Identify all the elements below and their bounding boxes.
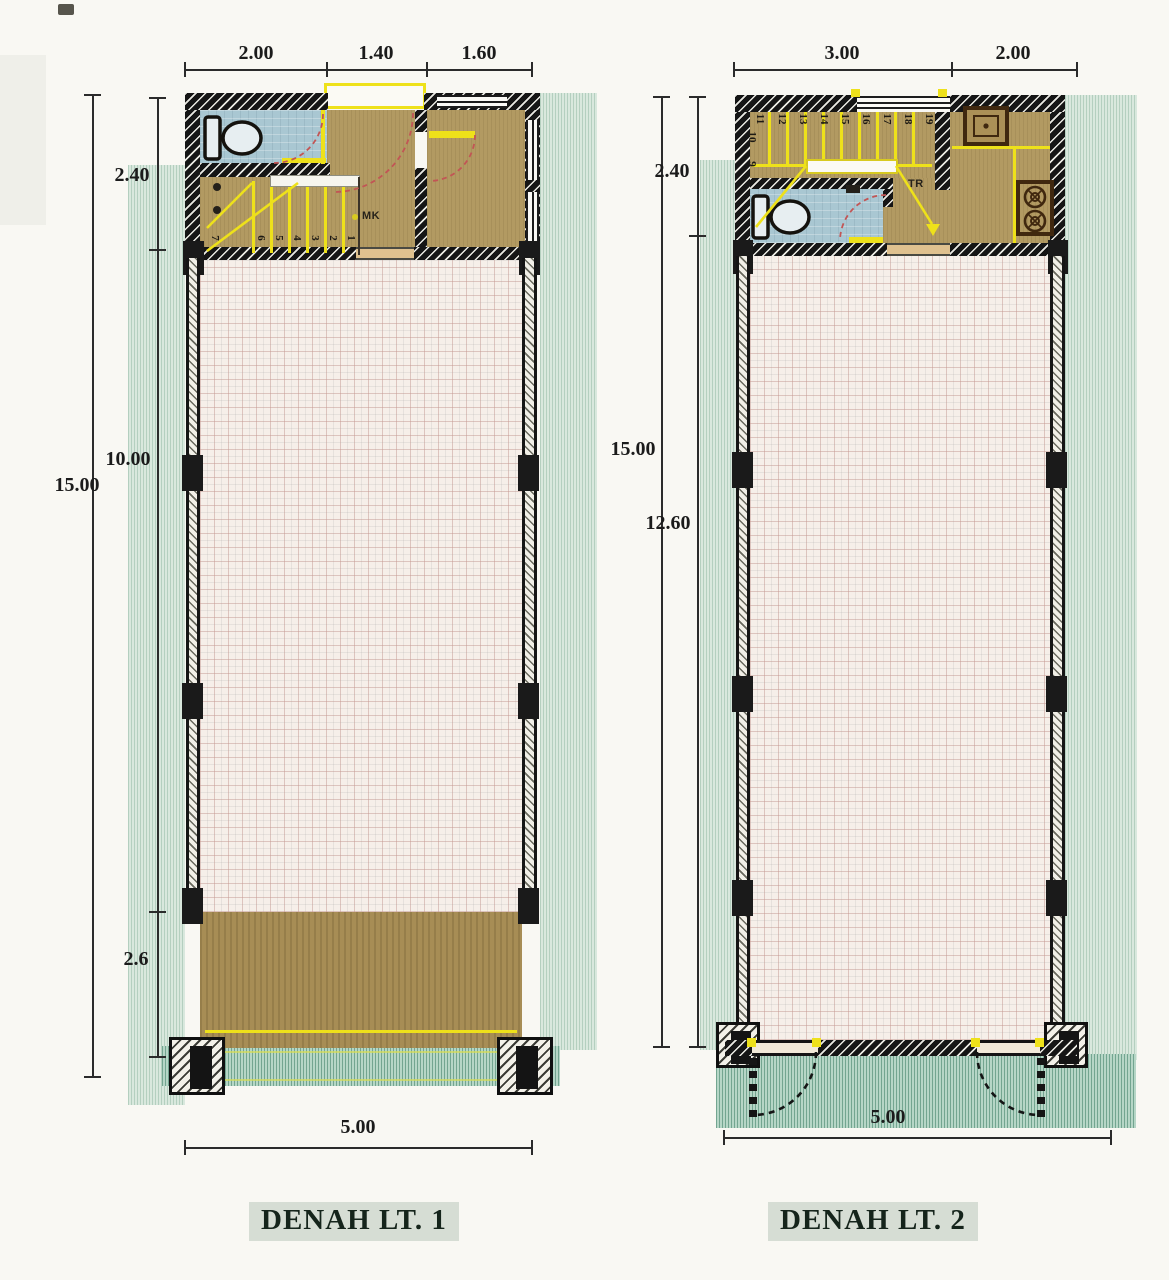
dim-tick [1110, 1130, 1112, 1145]
stair-number: 4 [289, 231, 303, 245]
floorplan-sheet: 2.00 1.40 1.60 15.00 2.40 10.00 2.6 [0, 0, 1169, 1280]
room-door-leaf [429, 131, 475, 138]
dim-tick [84, 1076, 101, 1078]
column [518, 888, 539, 924]
column [518, 455, 539, 491]
dimension-label: 15.00 [601, 438, 665, 461]
column-footing [169, 1037, 225, 1095]
column [732, 676, 753, 712]
stair-number: 2 [325, 231, 339, 245]
dim-line-bottom [724, 1137, 1112, 1139]
door-hinge-mark [1035, 1038, 1044, 1047]
dimension-label: 15.00 [45, 474, 109, 497]
stair-number: 11 [752, 112, 766, 126]
dimension-label: 10.00 [96, 448, 160, 471]
stair-number: 14 [816, 112, 830, 126]
carport-line [205, 1030, 517, 1033]
stair-direction-note: MK [362, 210, 380, 222]
stair-number: 15 [837, 112, 851, 126]
column [1046, 452, 1067, 488]
stair-number: 6 [253, 231, 267, 245]
terrace-floor [200, 912, 522, 1048]
dim-tick [653, 1046, 670, 1048]
column [518, 683, 539, 719]
dimension-label: 5.00 [326, 1116, 390, 1139]
dim-tick [689, 1046, 706, 1048]
kitchen-counter-line [1013, 146, 1016, 243]
stair-number: 12 [774, 112, 788, 126]
shower-head-mark [846, 185, 860, 193]
site-line [172, 1079, 545, 1081]
stair-handrail [270, 175, 360, 187]
column [1046, 676, 1067, 712]
column [182, 888, 203, 924]
dim-tick [149, 97, 166, 99]
newel-dot [213, 206, 221, 214]
partition-wall [415, 110, 427, 132]
bathroom-door-sill [849, 237, 883, 243]
dim-tick [426, 62, 428, 77]
note-dot [352, 214, 358, 220]
kitchen-counter-line [952, 146, 1050, 149]
door-hinge-mark [851, 89, 860, 97]
dimension-label: 2.40 [640, 160, 704, 183]
column [182, 455, 203, 491]
stair-number: 9 [744, 157, 758, 171]
dimension-label: 1.60 [447, 42, 511, 65]
dim-tick [951, 62, 953, 77]
stair-number: 1 [343, 231, 357, 245]
wall [185, 93, 328, 110]
stair-handrail [806, 159, 898, 174]
door-hinge-mark [971, 1038, 980, 1047]
bathroom-door-leaf [282, 158, 326, 163]
dimension-label: 2.6 [104, 948, 168, 971]
stair-number: 17 [879, 112, 893, 126]
main-room-entry-sill [887, 243, 950, 256]
dimension-label: 2.00 [224, 42, 288, 65]
dim-line-left-total [92, 95, 94, 1078]
dim-line-bottom [185, 1147, 533, 1149]
dim-tick [184, 62, 186, 77]
stair-number: 5 [271, 231, 285, 245]
dim-tick [733, 62, 735, 77]
dim-tick [689, 96, 706, 98]
plan-title: DENAH LT. 2 [768, 1202, 978, 1241]
dim-tick [149, 249, 166, 251]
bathroom-floor [750, 188, 883, 243]
scan-smudge [0, 55, 46, 225]
dim-tick [531, 1140, 533, 1155]
bathroom-wall [750, 178, 893, 189]
balcony-door-opening [977, 1040, 1040, 1056]
dim-line-left [157, 98, 159, 1058]
door-leaf-open [1037, 1058, 1045, 1118]
dimension-label: 3.00 [810, 42, 874, 65]
site-shading [1065, 95, 1137, 1060]
dim-tick [84, 94, 101, 96]
wall-with-windows [522, 258, 537, 912]
dim-tick [184, 1140, 186, 1155]
dim-tick [653, 96, 670, 98]
bathroom-wall [883, 189, 893, 207]
stair-number: 13 [795, 112, 809, 126]
stair-number: 10 [744, 130, 758, 144]
wall [185, 110, 200, 258]
dim-line-left-total [661, 97, 663, 1048]
site-shading [700, 160, 737, 1050]
dimension-label: 12.60 [636, 512, 700, 535]
site-shading [540, 93, 597, 1050]
door-hinge-mark [747, 1038, 756, 1047]
dim-tick [326, 62, 328, 77]
wall-with-windows [736, 256, 750, 1040]
column [732, 880, 753, 916]
dim-tick [723, 1130, 725, 1145]
window [526, 192, 539, 244]
main-room-floor [750, 256, 1050, 1040]
scan-speck [58, 4, 74, 15]
door-leaf-open [749, 1058, 757, 1118]
dim-tick [1076, 62, 1078, 77]
door-hinge-mark [938, 89, 947, 97]
wall [950, 95, 1065, 112]
dimension-label: 2.40 [100, 164, 164, 187]
column [1046, 880, 1067, 916]
dimension-label: 2.00 [981, 42, 1045, 65]
plan-title: DENAH LT. 1 [249, 1202, 459, 1241]
stair-number: 7 [207, 231, 221, 245]
stair-number: 3 [307, 231, 321, 245]
main-room-entry-sill [356, 247, 414, 260]
wall-with-windows [1050, 256, 1065, 1040]
wall [735, 95, 857, 112]
dim-tick [149, 1056, 166, 1058]
wall [735, 243, 887, 256]
entry-door-frame [324, 83, 426, 109]
dim-tick [149, 911, 166, 913]
dim-line-top [734, 69, 1078, 71]
balcony-door-opening [752, 1040, 818, 1056]
dimension-label: 5.00 [856, 1106, 920, 1129]
stair-direction-note: TR [908, 178, 924, 190]
dim-line-top [185, 69, 533, 71]
stair-edge [358, 177, 360, 255]
dim-tick [531, 62, 533, 77]
stair-tread-line [894, 112, 897, 166]
stair-number: 18 [900, 112, 914, 126]
wall-with-windows [186, 258, 200, 912]
main-room-floor [200, 258, 522, 912]
newel-dot [213, 183, 221, 191]
dim-tick [689, 235, 706, 237]
stair-number: 16 [858, 112, 872, 126]
window [437, 95, 507, 108]
window [857, 96, 950, 109]
stair-tread-line [768, 112, 771, 166]
door-hinge-mark [812, 1038, 821, 1047]
stair-number: 19 [921, 112, 935, 126]
dim-line-left [697, 97, 699, 1048]
column [182, 683, 203, 719]
wall [1050, 112, 1065, 243]
partition-wall [415, 168, 427, 258]
stair-kitchen-wall [935, 112, 950, 190]
column-footing [497, 1037, 553, 1095]
site-line [172, 1051, 545, 1053]
column [732, 452, 753, 488]
window [526, 120, 539, 180]
bathroom-door-frame [321, 110, 325, 164]
dimension-label: 1.40 [344, 42, 408, 65]
kitchen-floor [935, 112, 1050, 243]
